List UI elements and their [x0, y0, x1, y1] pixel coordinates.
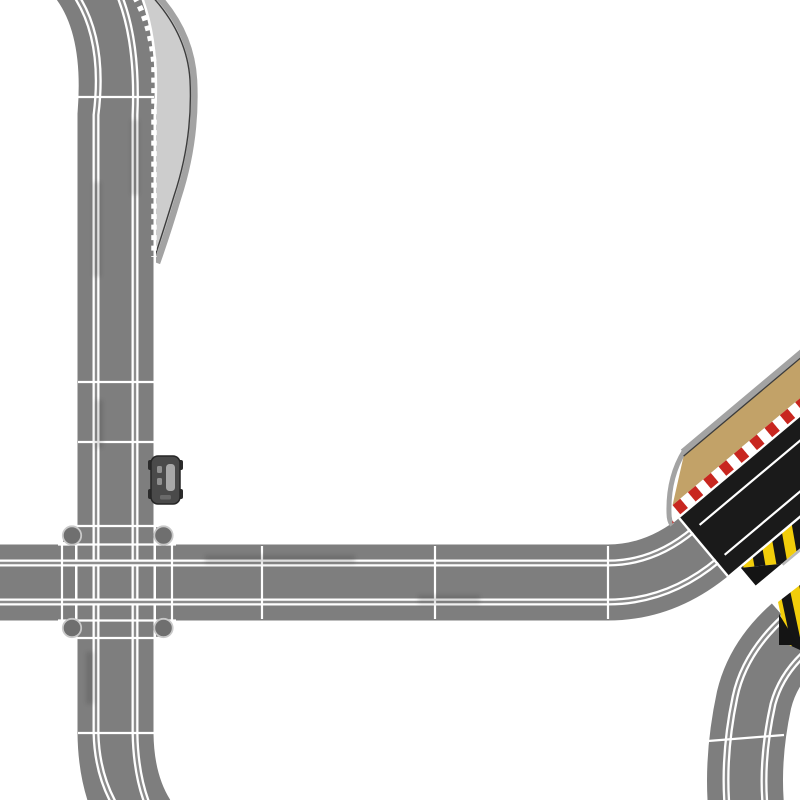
crossover-post [63, 526, 81, 544]
car-cockpit [166, 464, 175, 491]
crossover-post [154, 619, 172, 637]
track-layout-image [0, 0, 800, 800]
bottom-right-s-curve [708, 618, 800, 800]
crossover-post [63, 619, 81, 637]
crossover-post [154, 526, 172, 544]
slot-car-track-svg [0, 0, 800, 800]
parked-slot-car [148, 456, 183, 504]
